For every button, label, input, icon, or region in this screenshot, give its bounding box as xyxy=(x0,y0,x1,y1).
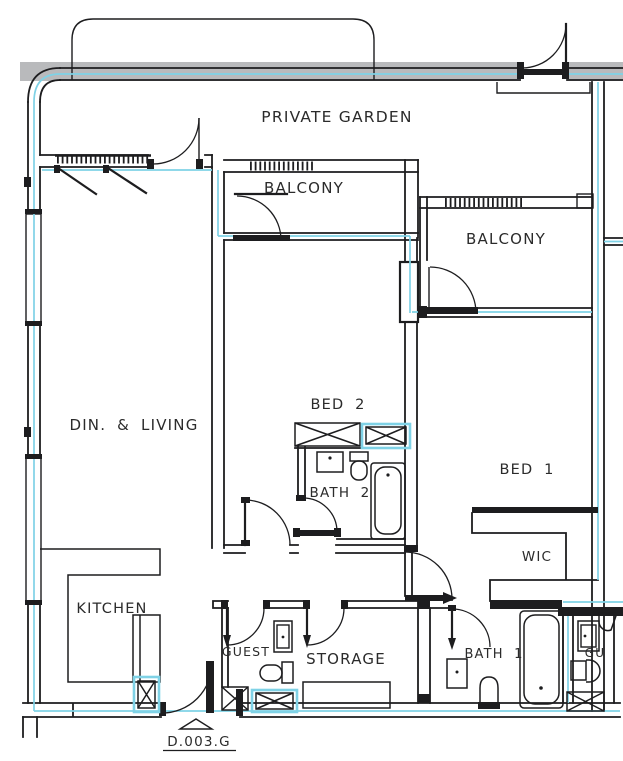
bed2-door xyxy=(241,497,290,546)
storage-door xyxy=(303,608,344,648)
label-neighbor-guest-partial: GU xyxy=(585,646,605,660)
bath2-sink xyxy=(317,452,343,472)
bath2-door xyxy=(293,498,341,537)
label-wic: WIC xyxy=(522,549,552,565)
balcony-right-door xyxy=(418,267,478,318)
label-bath1-room: BATH 1 xyxy=(464,647,523,662)
label-private-garden: PRIVATE GARDEN xyxy=(261,108,412,126)
label-bed2: BED 2 xyxy=(310,397,365,413)
guest-shaft-1 xyxy=(222,687,248,710)
guest-toilet xyxy=(260,662,293,683)
label-kitchen: KITCHEN xyxy=(76,601,147,617)
bath1-bathtub xyxy=(520,611,563,708)
storage-shelf xyxy=(303,682,390,708)
floor-plan-canvas: PRIVATE GARDEN BALCONY BALCONY DIN. & LI… xyxy=(0,0,623,761)
label-door-tag: D.003.G xyxy=(167,734,231,750)
garden-gate-door xyxy=(517,24,569,79)
living-garden-door xyxy=(147,118,203,169)
doors xyxy=(147,24,569,716)
bed2-shaft xyxy=(362,424,410,448)
entrance-door xyxy=(159,661,243,716)
guest-shaft-2 xyxy=(252,690,297,712)
bath1-sink xyxy=(447,659,467,688)
balcony-left-door xyxy=(233,194,290,241)
guest-door xyxy=(223,608,264,648)
bed2-wardrobe xyxy=(295,423,360,446)
label-din-living: DIN. & LIVING xyxy=(69,416,198,434)
label-guest: GUEST xyxy=(222,644,270,659)
guest-sink xyxy=(274,621,292,652)
label-storage: STORAGE xyxy=(306,650,386,668)
bath2-toilet xyxy=(350,452,368,480)
bath1-door xyxy=(448,605,490,650)
label-balcony-right: BALCONY xyxy=(466,230,546,248)
floor-plan: PRIVATE GARDEN BALCONY BALCONY DIN. & LI… xyxy=(0,0,623,761)
label-bed1: BED 1 xyxy=(499,462,554,478)
bath1-toilet xyxy=(478,677,500,709)
bath2-bathtub xyxy=(371,463,405,539)
label-balcony-left: BALCONY xyxy=(264,179,344,197)
label-bath2: BATH 2 xyxy=(310,485,371,501)
